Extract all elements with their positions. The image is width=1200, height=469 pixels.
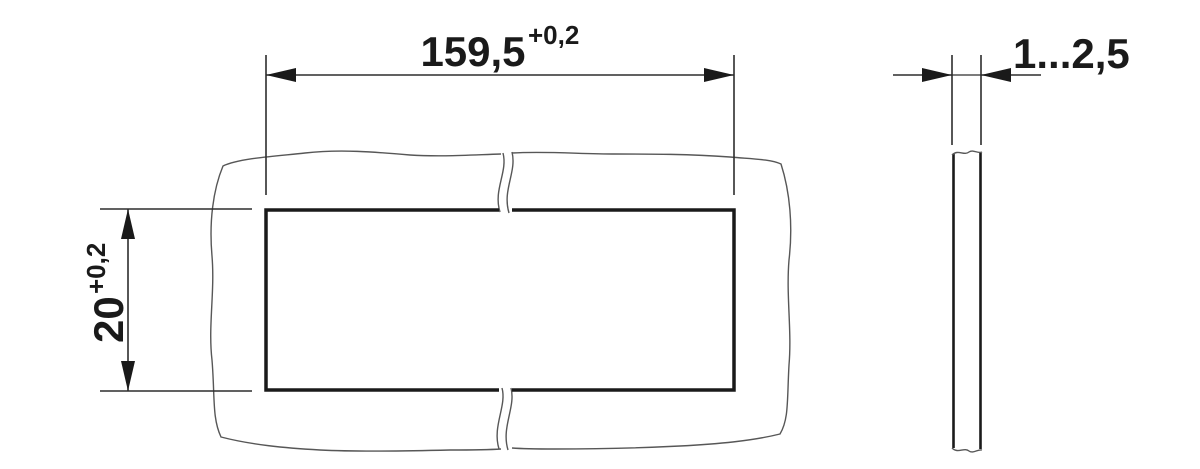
panel-outline-left xyxy=(211,151,501,451)
height-dimension: 20 +0,2 xyxy=(81,209,252,391)
front-view xyxy=(211,151,791,451)
cutout-rectangle-right xyxy=(512,210,734,390)
side-view xyxy=(952,151,982,452)
break-line-bottom-right xyxy=(506,388,512,450)
width-arrow-left-icon xyxy=(266,68,296,82)
break-line-bottom-left xyxy=(497,388,503,449)
break-line-top-right xyxy=(507,152,513,213)
thickness-arrow-left-icon xyxy=(922,68,952,82)
technical-drawing-svg: 159,5 +0,2 20 +0,2 xyxy=(0,0,1200,469)
panel-break-top xyxy=(952,151,982,155)
dimension-drawing-canvas: 159,5 +0,2 20 +0,2 xyxy=(0,0,1200,469)
cutout-rectangle-left xyxy=(266,210,499,390)
height-arrow-bottom-icon xyxy=(121,361,135,391)
width-dimension-tolerance: +0,2 xyxy=(528,20,579,50)
panel-break-bottom xyxy=(952,448,982,452)
break-line-top-left xyxy=(498,153,504,212)
width-arrow-right-icon xyxy=(704,68,734,82)
width-dimension: 159,5 +0,2 xyxy=(266,20,734,195)
height-arrow-top-icon xyxy=(121,209,135,239)
thickness-dimension-value: 1...2,5 xyxy=(1013,30,1130,77)
height-dimension-tolerance: +0,2 xyxy=(81,243,111,294)
thickness-dimension: 1...2,5 xyxy=(893,30,1130,145)
width-dimension-value: 159,5 xyxy=(420,28,525,75)
panel-outline-right xyxy=(512,152,791,449)
thickness-arrow-right-icon xyxy=(981,68,1011,82)
height-dimension-value: 20 xyxy=(85,296,132,343)
